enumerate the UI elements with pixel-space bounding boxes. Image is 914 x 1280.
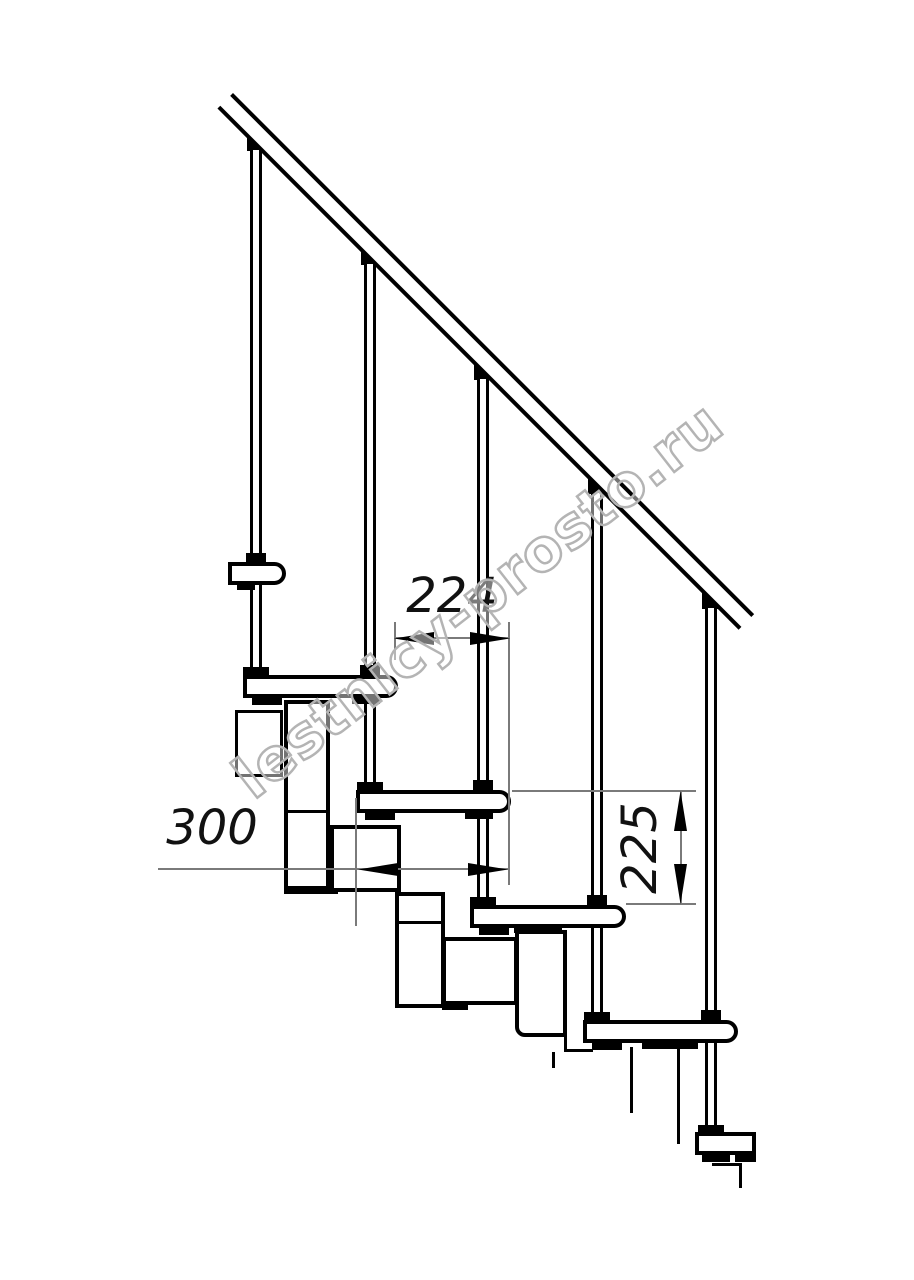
module-joint-line — [287, 810, 327, 813]
module-box-horizontal-2 — [442, 937, 518, 1005]
tread-tab — [592, 1042, 622, 1050]
tread-tab — [465, 812, 493, 819]
baluster-1 — [250, 150, 262, 675]
tread-tab — [237, 584, 255, 590]
baluster-foot — [470, 897, 496, 905]
module-joint-line — [398, 921, 442, 924]
module-box-horizontal-1 — [330, 825, 401, 892]
dim-arrow-up-icon — [674, 791, 687, 831]
baluster-5 — [705, 608, 717, 1135]
extension-line — [512, 790, 696, 792]
step-outline — [712, 1163, 739, 1166]
step-outline — [564, 1049, 593, 1052]
dim-arrow-down-icon — [674, 864, 687, 904]
extension-line — [508, 622, 510, 885]
step-outline — [677, 1044, 680, 1144]
baluster-collar — [473, 780, 493, 790]
baluster-4 — [591, 493, 603, 1020]
tread-tab — [735, 1152, 756, 1162]
baluster-collar — [701, 1010, 721, 1020]
tread-3 — [356, 790, 511, 813]
baluster-foot — [584, 1012, 610, 1020]
step-outline — [630, 1047, 633, 1113]
baluster-collar — [587, 895, 607, 905]
baluster-foot — [243, 667, 269, 675]
staircase-drawing: 224 300 225 lestnicy-prosto.ru — [0, 0, 914, 1280]
module-base-strip — [442, 1001, 468, 1010]
dimension-label-225: 225 — [616, 788, 664, 908]
step-outline — [739, 1163, 742, 1188]
tread-tab — [252, 697, 282, 705]
dimension-line-300 — [158, 868, 510, 870]
tread-tab — [642, 1042, 698, 1049]
tread-tab — [702, 1154, 730, 1162]
step-outline — [552, 1052, 555, 1068]
dimension-label-300: 300 — [166, 804, 258, 852]
module-box-vertical-2 — [395, 892, 445, 1008]
baluster-foot — [357, 782, 383, 790]
tread-tab — [365, 812, 395, 820]
tread-1 — [228, 562, 286, 585]
extension-line — [355, 798, 357, 926]
module-box-vertical-3 — [515, 930, 567, 1037]
tread-5 — [583, 1020, 738, 1043]
tread-4 — [470, 905, 626, 928]
tread-tab — [479, 927, 509, 935]
